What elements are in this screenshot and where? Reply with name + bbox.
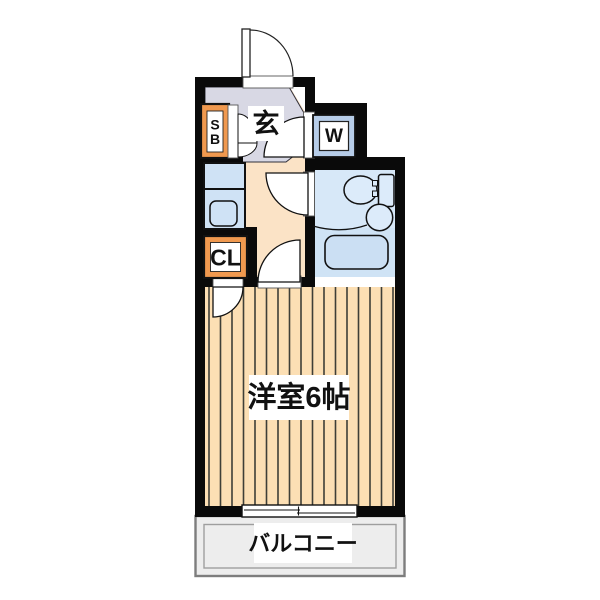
main-room-label: 洋室6帖 bbox=[247, 380, 350, 414]
sliding-window bbox=[242, 505, 357, 517]
kitchen-unit bbox=[204, 163, 245, 229]
toilet-hinge-dot-top bbox=[373, 181, 378, 187]
genkan-label: 玄 bbox=[253, 108, 280, 139]
entrance-door-leaf bbox=[242, 29, 250, 77]
kitchen-sink bbox=[210, 201, 237, 226]
kitchen-counter-upper bbox=[204, 163, 245, 189]
door-gap-entrance bbox=[243, 76, 293, 88]
wall-bathroom-top bbox=[305, 157, 405, 170]
washer-label: W bbox=[325, 126, 343, 147]
shoebox-label-b: B bbox=[210, 131, 220, 147]
floor-plan: 玄 W S B CL 洋室6帖 バルコニー bbox=[0, 0, 600, 600]
shoebox-door-strip bbox=[228, 105, 238, 158]
toilet-hinge-dot-bottom bbox=[373, 191, 378, 197]
toilet-tank bbox=[379, 175, 395, 207]
closet-label: CL bbox=[210, 245, 241, 271]
entrance-door-arc bbox=[250, 30, 293, 76]
balcony-label: バルコニー bbox=[248, 531, 358, 556]
wall-right bbox=[395, 157, 405, 517]
bathtub bbox=[325, 236, 388, 270]
wash-basin bbox=[366, 204, 392, 230]
floor-plan-page: 玄 W S B CL 洋室6帖 バルコニー bbox=[0, 0, 600, 600]
window-frame bbox=[242, 505, 357, 517]
